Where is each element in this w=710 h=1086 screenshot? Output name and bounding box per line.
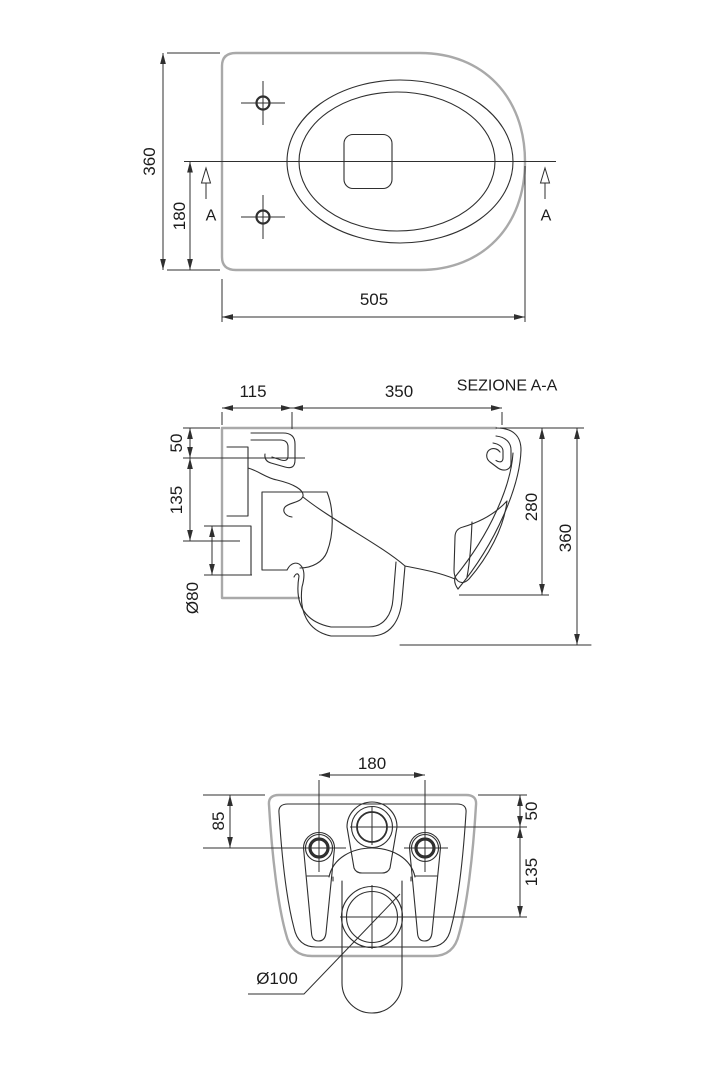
dim-label-350: 350 <box>385 382 413 401</box>
fixing-block <box>227 447 248 516</box>
dim-label-115: 115 <box>239 382 266 401</box>
section-label-a-left: A <box>206 208 217 225</box>
top-view: 360 180 505 A A <box>140 53 556 322</box>
section-title: SEZIONE A-A <box>457 378 558 395</box>
mounting-hole-bottom <box>241 195 285 239</box>
section-wall-outline <box>222 428 496 598</box>
dim-label-360-section: 360 <box>556 524 575 552</box>
dim-fixing-to-inlet: 135 <box>167 458 240 541</box>
dim-ledge: 115 <box>222 382 292 429</box>
trap-outer <box>287 563 405 636</box>
section-view: SEZIONE A-A 115 350 <box>167 378 591 645</box>
section-arrow-icon <box>541 168 550 183</box>
bowl-front-bottom <box>405 566 455 579</box>
dim-overall-width: 505 <box>222 166 525 322</box>
front-wall-inner <box>455 453 513 589</box>
technical-drawing-page: 360 180 505 A A SEZIONE A-A <box>0 0 710 1086</box>
dim-rim-to-outlet: 280 <box>459 428 584 595</box>
rear-view: 180 85 50 135 Ø100 <box>203 754 541 1013</box>
drawing-canvas: 360 180 505 A A SEZIONE A-A <box>0 0 710 1086</box>
inlet-spud <box>227 526 251 575</box>
bowl-rear-surface <box>303 497 405 566</box>
dim-label-50-rear: 50 <box>522 802 541 821</box>
dim-label-d100: Ø100 <box>256 969 298 988</box>
section-cut-marker-left: A <box>202 168 217 225</box>
dim-inlet-to-outlet: 135 <box>520 827 541 917</box>
dim-label-180-rear: 180 <box>358 754 386 773</box>
dim-axis-offset: 180 <box>170 162 190 271</box>
dim-label-360: 360 <box>140 147 159 175</box>
dim-label-50: 50 <box>167 434 186 453</box>
fixing-hole-left <box>203 835 346 862</box>
dim-label-d80: Ø80 <box>183 582 202 614</box>
section-arrow-icon <box>202 168 211 183</box>
dim-label-280: 280 <box>522 493 541 521</box>
dim-label-135-rear: 135 <box>522 858 541 886</box>
rim-channel-left-inner <box>251 440 288 461</box>
section-cut-marker-right: A <box>541 168 552 225</box>
rim-channel-right-inner <box>493 443 503 462</box>
dim-top-to-holes: 85 <box>203 795 265 848</box>
section-body <box>222 428 521 636</box>
dim-outlet-diameter: Ø100 <box>248 894 400 994</box>
dim-label-180: 180 <box>170 202 189 230</box>
trap-inner <box>294 562 396 627</box>
flush-chamber <box>262 492 332 570</box>
rim-channel-right <box>487 436 511 470</box>
mounting-hole-top <box>241 81 285 125</box>
dim-label-505: 505 <box>360 290 388 309</box>
dim-label-85: 85 <box>209 812 228 831</box>
dim-inlet-diameter: Ø80 <box>183 526 252 614</box>
dim-label-135: 135 <box>167 486 186 514</box>
section-label-a-right: A <box>541 208 552 225</box>
dim-top-to-inlet: 50 <box>478 795 541 827</box>
